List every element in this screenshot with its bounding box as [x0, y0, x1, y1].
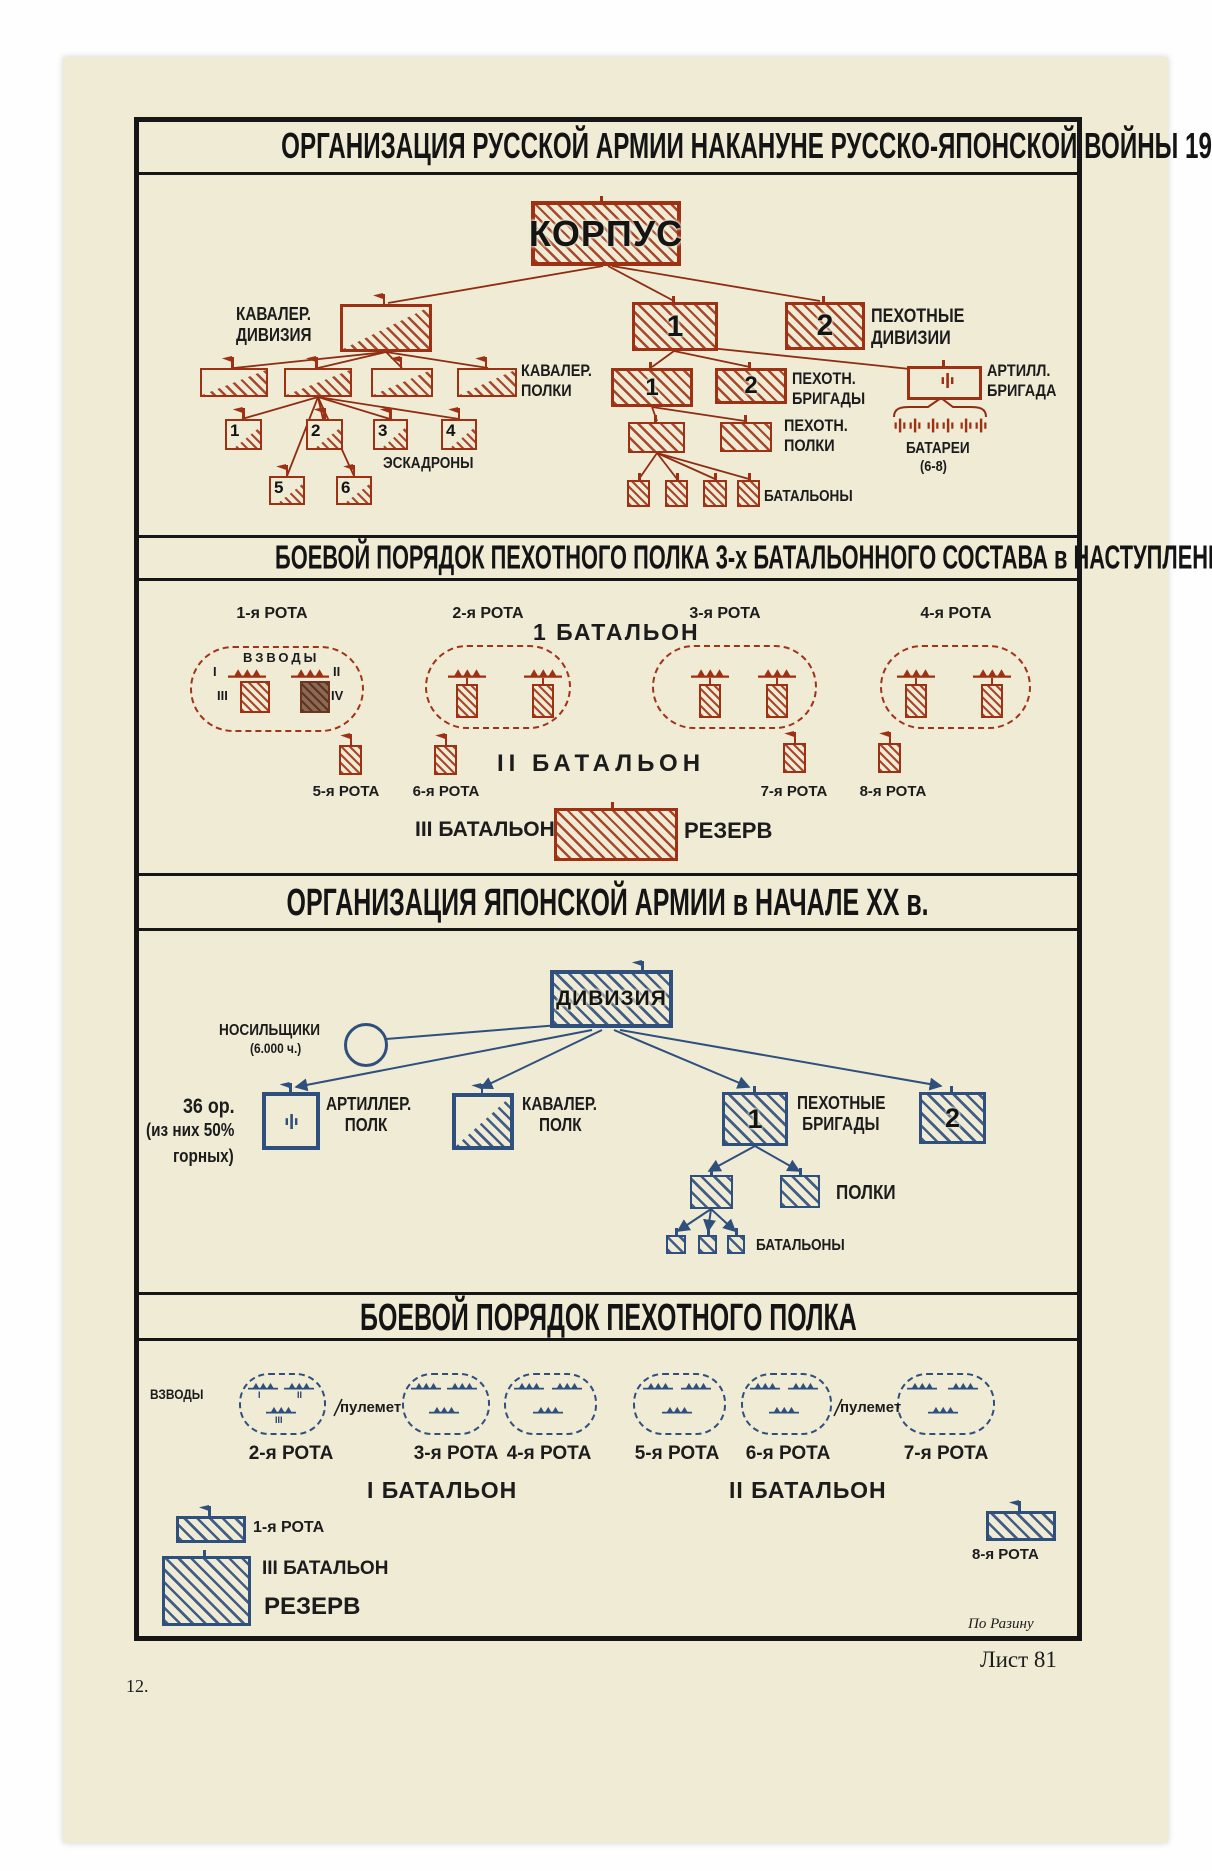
- company-label: 7-я РОТА: [754, 783, 834, 801]
- reserve-pole: [203, 1550, 206, 1559]
- brigade-pole: [748, 362, 751, 371]
- flag-icon: [289, 1083, 292, 1096]
- squadron-box: 6: [336, 476, 372, 505]
- reserve-box: [162, 1556, 251, 1626]
- battalion1-label: I БАТАЛЬОН: [367, 1477, 517, 1504]
- company-label: 2-я РОТА: [241, 1443, 341, 1465]
- cavalry-regiment-box: [200, 368, 268, 397]
- company-box: [766, 684, 788, 718]
- company-label: 7-я РОТА: [896, 1443, 996, 1465]
- batteries-label: БАТАРЕИ: [906, 440, 970, 459]
- company-label: 5-я РОТА: [627, 1443, 727, 1465]
- skirmish-line-icon: [948, 1380, 978, 1390]
- reserve-pole: [611, 802, 614, 811]
- division-pole: [672, 296, 675, 305]
- squadron-box: 3: [373, 419, 408, 450]
- skirmish-line-icon: [750, 1380, 780, 1390]
- infantry-brigade-box: 2: [715, 368, 787, 404]
- company-box: [905, 684, 927, 718]
- divider-2b: [139, 578, 1077, 581]
- regiment-pole: [654, 415, 657, 424]
- flag-icon: [315, 357, 318, 370]
- brigade-pole: [753, 1086, 756, 1095]
- skirmish-line-icon: [448, 666, 486, 678]
- company8-label: 8-я РОТА: [972, 1546, 1039, 1564]
- skirmish-line-icon: [897, 666, 935, 678]
- company-box: [456, 684, 478, 718]
- platoon-numeral: III: [275, 1415, 283, 1426]
- company-oval: [880, 645, 1031, 729]
- flag-icon: [286, 465, 289, 478]
- cavalry-regiment-box: [371, 368, 433, 397]
- company-box: [878, 743, 901, 773]
- brigade-pole: [950, 1086, 953, 1095]
- credit-note: По Разину: [968, 1616, 1034, 1634]
- korpus-pole: [600, 196, 603, 205]
- company-box: [532, 684, 554, 718]
- flag-icon: [231, 357, 234, 370]
- infantry-brigades-label: ПЕХОТН.БРИГАДЫ: [792, 369, 865, 409]
- artillery-pole: [942, 360, 945, 369]
- infantry-regiment-box: [720, 422, 772, 452]
- battalion-pole: [638, 473, 641, 482]
- batteries-count: (6-8): [920, 458, 947, 476]
- divider-4a: [139, 1292, 1077, 1295]
- company-label: 5-я РОТА: [306, 783, 386, 801]
- artillery-brigade-box: [907, 366, 982, 400]
- company1-box: [176, 1516, 246, 1543]
- platoon-numeral: I: [213, 664, 217, 679]
- platoon-numeral: IV: [331, 688, 343, 703]
- regiment-pole: [710, 1168, 713, 1177]
- pole: [915, 678, 917, 684]
- company8-box: [986, 1511, 1056, 1541]
- flag-icon: [383, 294, 386, 307]
- company-box: [981, 684, 1003, 718]
- flag-icon: [445, 734, 448, 747]
- division-pole: [822, 296, 825, 305]
- battalion-pole: [714, 473, 717, 482]
- skirmish-line-icon: [662, 1404, 692, 1414]
- korpus-label: КОРПУС: [535, 205, 677, 262]
- platoon-numeral: III: [217, 688, 228, 703]
- battalions-label: БАТАЛЬОНЫ: [756, 1237, 845, 1256]
- battalion3-label: III БАТАЛЬОН: [415, 818, 555, 843]
- skirmish-line-icon: [447, 1380, 477, 1390]
- divider-2a: [139, 535, 1077, 538]
- brigade-pole: [649, 362, 652, 371]
- company-label: 4-я РОТА: [499, 1443, 599, 1465]
- flag-icon: [350, 734, 353, 747]
- squadrons-label: ЭСКАДРОНЫ: [383, 455, 473, 474]
- guns-note-1: (из них 50%: [146, 1120, 234, 1141]
- page-number: 12.: [126, 1676, 149, 1697]
- cavalry-regiment-box: [452, 1093, 514, 1150]
- infantry-regiments-label: ПЕХОТН.ПОЛКИ: [784, 416, 848, 456]
- reserve-box: [554, 808, 678, 861]
- pole: [542, 678, 544, 684]
- platoon-numeral: II: [333, 664, 340, 679]
- battalion-pole: [735, 1228, 738, 1237]
- flag-icon: [889, 732, 892, 745]
- porters-label: НОСИЛЬЩИКИ: [219, 1022, 320, 1041]
- skirmish-line-icon: [248, 1380, 278, 1390]
- pole: [776, 678, 778, 684]
- infantry-brigades-label: ПЕХОТНЫЕБРИГАДЫ: [797, 1093, 885, 1135]
- company-label: 3-я РОТА: [406, 1443, 506, 1465]
- company-label: 6-я РОТА: [738, 1443, 838, 1465]
- section1-title: ОРГАНИЗАЦИЯ РУССКОЙ АРМИИ НАКАНУНЕ РУССК…: [139, 128, 1077, 164]
- company-oval: [652, 645, 817, 729]
- reserve-label: РЕЗЕРВ: [264, 1593, 360, 1621]
- regiment-box: [690, 1175, 733, 1209]
- japanese-division-label: ДИВИЗИЯ: [554, 974, 669, 1024]
- cavalry-regiment-box: [457, 368, 517, 397]
- battery-icon: [942, 418, 954, 433]
- cavalry-regiment-label: КАВАЛЕР.ПОЛК: [522, 1094, 597, 1136]
- regiments-label: ПОЛКИ: [836, 1182, 896, 1206]
- infantry-brigade-box: 1: [722, 1092, 788, 1146]
- skirmish-line-icon: [228, 666, 266, 678]
- battalion-box: [698, 1235, 717, 1254]
- pole: [466, 678, 468, 684]
- platoons-label: ВЗВОДЫ: [243, 650, 319, 665]
- battalion-box: [703, 480, 727, 507]
- battalion-box: [627, 480, 650, 507]
- skirmish-line-icon: [758, 666, 796, 678]
- company-label: 1-я РОТА: [227, 605, 317, 624]
- divider-3a: [139, 873, 1077, 876]
- flag-icon: [794, 732, 797, 745]
- regiment-pole: [799, 1168, 802, 1177]
- company1-label: 1-я РОТА: [253, 1519, 324, 1538]
- flag-icon: [353, 465, 356, 478]
- skirmish-line-icon: [691, 666, 729, 678]
- section2-title: БОЕВОЙ ПОРЯДОК ПЕХОТНОГО ПОЛКА 3-х БАТАЛ…: [139, 542, 1077, 574]
- cannon-icon: [285, 1114, 298, 1129]
- infantry-division-box: 1: [632, 302, 718, 351]
- porters-count: (6.000 ч.): [250, 1040, 301, 1057]
- battalion2-label: II БАТАЛЬОН: [729, 1477, 887, 1504]
- battalion2-label: II БАТАЛЬОН: [497, 750, 705, 778]
- regiment-box: [780, 1175, 820, 1208]
- flag-icon: [323, 408, 326, 421]
- regiment-pole: [744, 415, 747, 424]
- company-label: 4-я РОТА: [911, 605, 1001, 624]
- flag-icon: [641, 961, 644, 974]
- squadron-box: 4: [441, 419, 477, 450]
- cavalry-regiments-label: КАВАЛЕР.ПОЛКИ: [521, 361, 592, 401]
- battalion-box: [666, 1235, 686, 1254]
- squadron-box: 1: [225, 419, 262, 450]
- flag-icon: [481, 1084, 484, 1097]
- battery-icon: [894, 418, 906, 433]
- company-label: 2-я РОТА: [443, 605, 533, 624]
- battery-icon: [960, 418, 972, 433]
- squadron-box: 2: [306, 419, 343, 450]
- battalion-pole: [675, 1228, 678, 1237]
- flag-icon: [242, 408, 245, 421]
- company-box: [339, 745, 362, 775]
- battalion1-label: 1 БАТАЛЬОН: [533, 619, 700, 646]
- guns-note-2: горных): [173, 1146, 234, 1167]
- skirmish-line-icon: [681, 1380, 711, 1390]
- skirmish-line-icon: [533, 1404, 563, 1414]
- infantry-regiment-box: [628, 422, 685, 453]
- section3-title: ОРГАНИЗАЦИЯ ЯПОНСКОЙ АРМИИ в НАЧАЛЕ XX в…: [139, 884, 1077, 921]
- artillery-brigade-label: АРТИЛЛ.БРИГАДА: [987, 361, 1056, 401]
- battalion-pole: [748, 473, 751, 482]
- company-box: [783, 743, 806, 773]
- infantry-division-box: 2: [785, 302, 865, 350]
- pole: [991, 678, 993, 684]
- flag-icon: [485, 357, 488, 370]
- infantry-brigade-box: 1: [611, 368, 693, 407]
- skirmish-line-icon: [788, 1380, 818, 1390]
- skirmish-line-icon: [429, 1404, 459, 1414]
- skirmish-line-icon: [973, 666, 1011, 678]
- pole: [709, 678, 711, 684]
- cavalry-regiment-box: [284, 368, 352, 397]
- guns-count: 36 ор.: [183, 1095, 235, 1120]
- skirmish-line-icon: [524, 666, 562, 678]
- skirmish-line-icon: [291, 666, 329, 678]
- company-label: 6-я РОТА: [406, 783, 486, 801]
- platoon-numeral: I: [258, 1390, 261, 1401]
- platoon-box-shaded: [300, 681, 330, 713]
- company-box: [434, 745, 457, 775]
- skirmish-line-icon: [928, 1404, 958, 1414]
- section4-title: БОЕВОЙ ПОРЯДОК ПЕХОТНОГО ПОЛКА: [139, 1299, 1077, 1336]
- flag-icon: [458, 408, 461, 421]
- skirmish-line-icon: [769, 1404, 799, 1414]
- battery-icon: [909, 418, 921, 433]
- scanned-sheet: ОРГАНИЗАЦИЯ РУССКОЙ АРМИИ НАКАНУНЕ РУССК…: [0, 0, 1212, 1871]
- japanese-division-box: ДИВИЗИЯ: [550, 970, 673, 1028]
- battalion-pole: [707, 1228, 710, 1237]
- porters-circle: [344, 1023, 388, 1067]
- sheet-number: Лист 81: [980, 1646, 1057, 1673]
- flag-icon: [389, 408, 392, 421]
- flag-icon: [1018, 1501, 1021, 1514]
- battalion-box: [665, 480, 688, 507]
- divider-1: [139, 172, 1077, 175]
- company-label: 8-я РОТА: [853, 783, 933, 801]
- platoon-box: [240, 681, 270, 713]
- machinegun-label: пулемет: [840, 1399, 901, 1417]
- cavalry-division-label: КАВАЛЕР.ДИВИЗИЯ: [236, 304, 312, 346]
- battery-icon: [975, 418, 987, 433]
- cannon-icon: [941, 373, 954, 388]
- machinegun-label: пулемет: [340, 1399, 401, 1417]
- cavalry-division-box: [340, 304, 432, 352]
- artillery-regiment-label: АРТИЛЛЕР.ПОЛК: [326, 1094, 411, 1136]
- infantry-brigade-box: 2: [919, 1092, 986, 1144]
- divider-3b: [139, 928, 1077, 931]
- flag-icon: [400, 357, 403, 370]
- skirmish-line-icon: [266, 1404, 296, 1414]
- battalion-pole: [676, 473, 679, 482]
- korpus-box: КОРПУС: [531, 201, 681, 266]
- skirmish-line-icon: [411, 1380, 441, 1390]
- skirmish-line-icon: [514, 1380, 544, 1390]
- artillery-regiment-box: [262, 1092, 320, 1150]
- battalion-box: [727, 1235, 745, 1254]
- squadron-box: 5: [269, 476, 305, 505]
- platoon-numeral: II: [297, 1390, 302, 1401]
- skirmish-line-icon: [552, 1380, 582, 1390]
- battery-icon: [927, 418, 939, 433]
- reserve-label: РЕЗЕРВ: [684, 818, 772, 844]
- battalion3-label: III БАТАЛЬОН: [262, 1558, 388, 1580]
- skirmish-line-icon: [284, 1380, 314, 1390]
- platoons-label: ВЗВОДЫ: [150, 1386, 203, 1403]
- skirmish-line-icon: [643, 1380, 673, 1390]
- skirmish-line-icon: [907, 1380, 937, 1390]
- flag-icon: [208, 1506, 211, 1519]
- company-box: [699, 684, 721, 718]
- infantry-divisions-label: ПЕХОТНЫЕДИВИЗИИ: [871, 306, 964, 351]
- battalion-box: [737, 480, 760, 507]
- battalions-label: БАТАЛЬОНЫ: [764, 488, 853, 507]
